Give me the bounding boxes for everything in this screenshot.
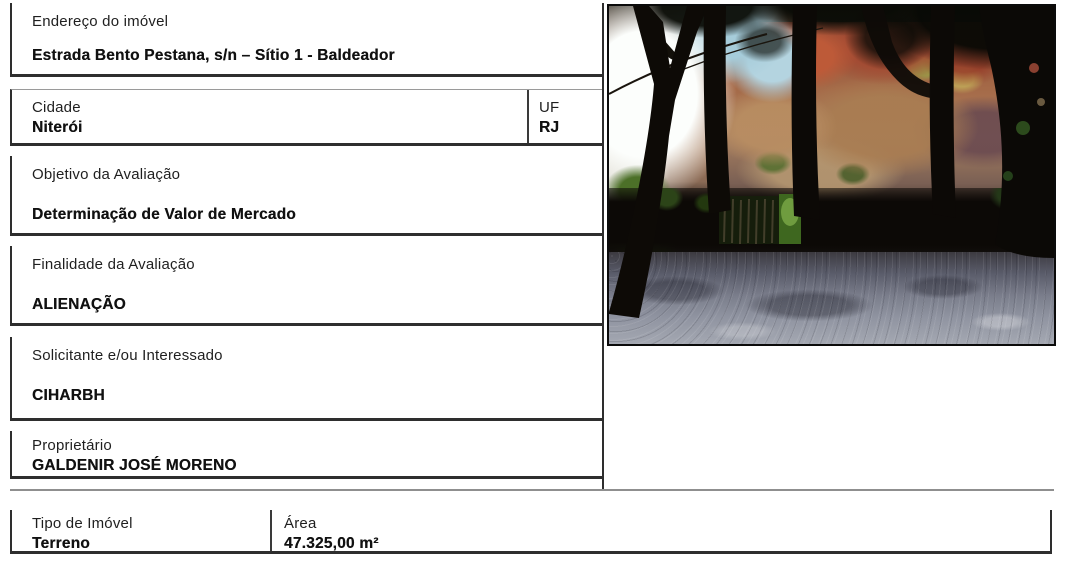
field-finalidade: Finalidade da Avaliação ALIENAÇÃO — [10, 246, 603, 326]
field-row-cidade-uf: Cidade Niterói UF RJ — [10, 89, 603, 146]
appraisal-form-page: Endereço do imóvel Estrada Bento Pestana… — [0, 0, 1072, 561]
field-area-label: Área — [284, 515, 1044, 532]
field-area: Área 47.325,00 m² — [270, 510, 1050, 551]
field-proprietario: Proprietário GALDENIR JOSÉ MORENO — [10, 431, 603, 479]
field-endereco-label: Endereço do imóvel — [32, 13, 595, 30]
field-cidade-label: Cidade — [32, 99, 521, 116]
section-divider-line — [10, 489, 1054, 491]
field-tipo-imovel: Tipo de Imóvel Terreno — [12, 510, 270, 551]
field-finalidade-label: Finalidade da Avaliação — [32, 256, 595, 273]
field-area-value: 47.325,00 m² — [284, 535, 1044, 553]
field-proprietario-value: GALDENIR JOSÉ MORENO — [32, 457, 595, 475]
field-endereco: Endereço do imóvel Estrada Bento Pestana… — [10, 3, 603, 77]
field-row-tipo-area: Tipo de Imóvel Terreno Área 47.325,00 m² — [10, 510, 1052, 554]
field-objetivo-value: Determinação de Valor de Mercado — [32, 206, 595, 224]
field-uf-label: UF — [539, 99, 597, 116]
field-cidade: Cidade Niterói — [12, 90, 527, 143]
form-right-border-line — [602, 3, 604, 491]
field-objetivo: Objetivo da Avaliação Determinação de Va… — [10, 156, 603, 236]
field-objetivo-label: Objetivo da Avaliação — [32, 166, 595, 183]
field-endereco-value: Estrada Bento Pestana, s/n – Sítio 1 - B… — [32, 47, 595, 65]
property-photo — [607, 4, 1056, 346]
photo-tree-trunks-silhouette — [609, 6, 1054, 344]
field-finalidade-value: ALIENAÇÃO — [32, 296, 595, 314]
field-solicitante-label: Solicitante e/ou Interessado — [32, 347, 595, 364]
field-uf-value: RJ — [539, 119, 597, 137]
field-solicitante: Solicitante e/ou Interessado CIHARBH — [10, 337, 603, 421]
field-tipo-imovel-label: Tipo de Imóvel — [32, 515, 264, 532]
field-solicitante-value: CIHARBH — [32, 387, 595, 405]
field-tipo-imovel-value: Terreno — [32, 535, 264, 553]
field-cidade-value: Niterói — [32, 119, 521, 137]
field-uf: UF RJ — [527, 90, 603, 143]
field-proprietario-label: Proprietário — [32, 437, 595, 454]
